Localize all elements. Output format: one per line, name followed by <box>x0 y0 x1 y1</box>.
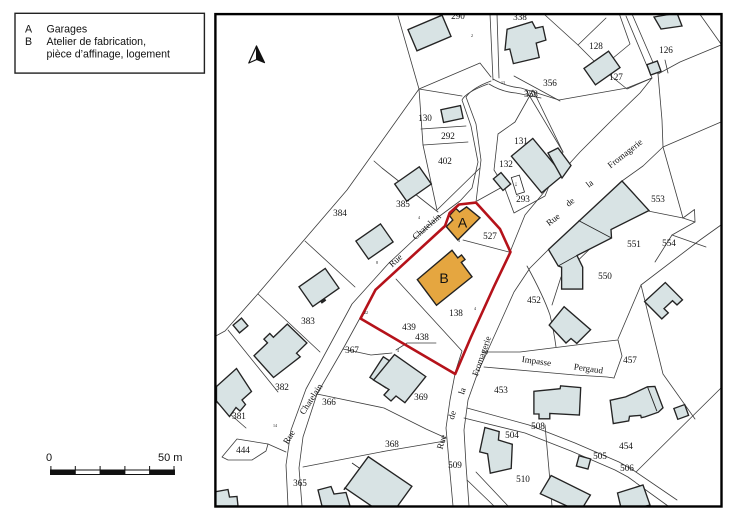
svg-text:505: 505 <box>593 451 607 461</box>
svg-text:356: 356 <box>543 78 557 88</box>
svg-text:131: 131 <box>514 136 528 146</box>
svg-text:385: 385 <box>396 199 410 209</box>
svg-text:4: 4 <box>458 238 460 243</box>
svg-text:132: 132 <box>499 159 513 169</box>
svg-text:0: 0 <box>46 452 52 464</box>
svg-text:4: 4 <box>397 348 399 353</box>
svg-text:A: A <box>458 215 468 231</box>
svg-text:457: 457 <box>623 355 637 365</box>
svg-text:365: 365 <box>293 478 307 488</box>
svg-text:509: 509 <box>448 460 462 470</box>
svg-text:128: 128 <box>589 41 603 51</box>
svg-text:B: B <box>439 270 448 286</box>
svg-text:454: 454 <box>619 441 633 451</box>
svg-text:358: 358 <box>524 89 538 99</box>
svg-text:Atelier de fabrication,: Atelier de fabrication, <box>47 36 147 48</box>
svg-text:A: A <box>25 24 33 36</box>
svg-text:pièce d’affinage, logement: pièce d’affinage, logement <box>47 49 171 61</box>
svg-text:293: 293 <box>516 194 530 204</box>
svg-text:366: 366 <box>322 397 336 407</box>
svg-text:369: 369 <box>414 392 428 402</box>
svg-text:B: B <box>25 36 32 48</box>
svg-text:13: 13 <box>501 80 505 85</box>
svg-text:126: 126 <box>659 45 673 55</box>
svg-text:438: 438 <box>415 332 429 342</box>
svg-text:Garages: Garages <box>47 24 88 36</box>
svg-text:439: 439 <box>402 322 416 332</box>
svg-text:551: 551 <box>627 239 641 249</box>
svg-text:527: 527 <box>483 231 497 241</box>
svg-text:22: 22 <box>364 310 368 315</box>
svg-text:384: 384 <box>333 208 347 218</box>
svg-text:367: 367 <box>345 345 359 355</box>
svg-text:453: 453 <box>494 385 508 395</box>
svg-text:550: 550 <box>598 271 612 281</box>
svg-text:130: 130 <box>418 113 432 123</box>
svg-text:444: 444 <box>236 445 250 455</box>
svg-text:381: 381 <box>232 411 246 421</box>
svg-text:14: 14 <box>273 423 277 428</box>
svg-text:553: 553 <box>651 194 665 204</box>
svg-text:292: 292 <box>441 131 455 141</box>
svg-text:554: 554 <box>662 238 676 248</box>
svg-text:382: 382 <box>275 382 289 392</box>
svg-text:510: 510 <box>516 474 530 484</box>
svg-text:2: 2 <box>471 33 473 38</box>
svg-text:138: 138 <box>449 308 463 318</box>
svg-text:4: 4 <box>474 306 476 311</box>
svg-text:508: 508 <box>531 421 545 431</box>
svg-text:368: 368 <box>385 439 399 449</box>
svg-text:506: 506 <box>620 463 634 473</box>
svg-text:127: 127 <box>609 72 623 82</box>
svg-text:8: 8 <box>376 260 378 265</box>
svg-text:383: 383 <box>301 316 315 326</box>
svg-text:402: 402 <box>438 156 452 166</box>
svg-text:452: 452 <box>527 295 541 305</box>
svg-text:↓: ↓ <box>514 181 518 188</box>
svg-text:4: 4 <box>418 215 420 220</box>
svg-text:50 m: 50 m <box>158 452 182 464</box>
svg-text:504: 504 <box>505 430 519 440</box>
